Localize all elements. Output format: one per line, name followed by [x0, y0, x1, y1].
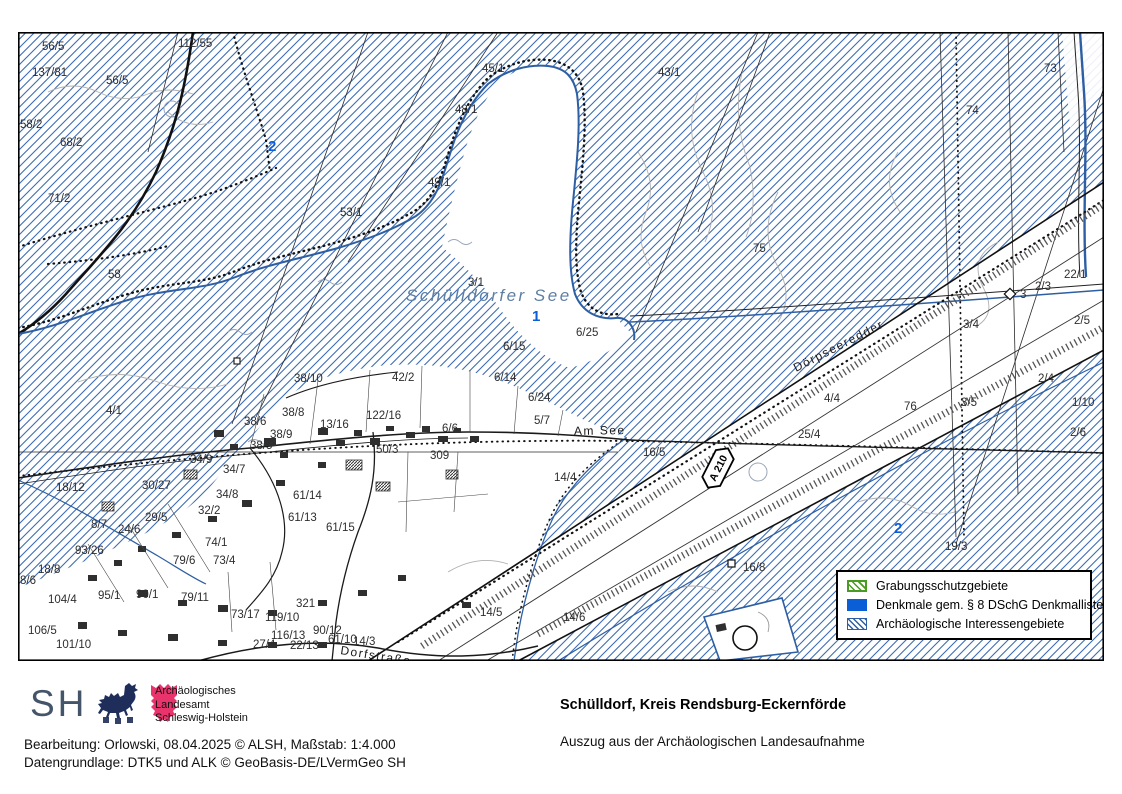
parcel-label: 38/5: [250, 440, 272, 452]
parcel-label: 42/2: [392, 372, 414, 384]
map-sheet: A 210 56/5112/55137/8156/558/268/271/258…: [0, 0, 1122, 794]
parcel-label: 61/13: [288, 512, 317, 524]
parcel-label: 74: [966, 105, 979, 117]
parcel-label: 16/5: [643, 447, 665, 459]
legend-row-denkmale: Denkmale gem. § 8 DSchG Denkmalliste: [847, 598, 1090, 612]
parcel-label: 14/4: [554, 472, 577, 484]
parcel-label: 6/15: [503, 341, 525, 353]
parcel-label: 38/9: [270, 429, 292, 441]
parcel-label: 2/6: [1070, 427, 1086, 439]
parcel-label: 3/5: [961, 397, 977, 409]
parcel-label: 24/6: [118, 524, 140, 536]
parcel-label: 8/7: [91, 519, 107, 531]
map-subtitle: Auszug aus der Archäologischen Landesauf…: [560, 734, 865, 749]
parcel-label: 101/10: [56, 639, 91, 651]
parcel-label: 309: [430, 450, 449, 462]
blue-hatch-swatch: [847, 618, 867, 630]
parcel-label: 73: [1044, 63, 1057, 75]
parcel-label: 32/2: [198, 505, 220, 517]
parcel-label: 49/1: [428, 177, 450, 189]
parcel-label: 18/8: [38, 564, 60, 576]
parcel-label: 119/10: [265, 612, 299, 624]
parcel-label: 106/5: [28, 625, 57, 637]
legend-label: Grabungsschutzgebiete: [876, 579, 1008, 593]
parcel-label: 6/14: [494, 372, 517, 384]
parcel-label: 18/12: [56, 482, 85, 494]
legend-row-grabungsschutzgebiete: Grabungsschutzgebiete: [847, 579, 1090, 593]
parcel-label: 137/81: [32, 67, 67, 79]
parcel-label: 34/8: [216, 489, 238, 501]
parcel-label: 45/1: [482, 63, 504, 75]
parcel-label: 112/55: [178, 38, 212, 50]
parcel-label: 16/8: [743, 562, 765, 574]
parcel-label: 6/24: [528, 392, 551, 404]
parcel-label: 27/4: [253, 639, 276, 651]
parcel-label: 43/1: [658, 67, 680, 79]
parcel-label: 14/6: [563, 612, 585, 624]
parcel-label: 74/1: [205, 537, 227, 549]
parcel-label: 3: [1020, 289, 1026, 301]
credit-line-datasource: Datengrundlage: DTK5 und ALK © GeoBasis-…: [24, 755, 406, 770]
parcel-label: 122/16: [366, 410, 401, 422]
parcel-label: 34/7: [223, 464, 245, 476]
parcel-label: 61/15: [326, 522, 355, 534]
interest-area-number-label: 2: [268, 138, 276, 155]
parcel-label: 58/2: [20, 119, 42, 131]
map-drawing: A 210 56/5112/55137/8156/558/268/271/258…: [18, 32, 1104, 661]
parcel-label: 48/1: [455, 104, 477, 116]
map-title: Schülldorf, Kreis Rendsburg-Eckernförde: [560, 697, 846, 713]
parcel-label: 68/2: [60, 137, 82, 149]
parcel-label: 95/1: [98, 590, 120, 602]
credit-line-editing: Bearbeitung: Orlowski, 08.04.2025 © ALSH…: [24, 737, 396, 752]
interest-area-number-label: 2: [894, 520, 902, 537]
lion-icon: [95, 683, 141, 725]
parcel-label: 34/9: [190, 454, 212, 466]
parcel-label: 6/25: [576, 327, 598, 339]
agency-line: Schleswig-Holstein: [155, 712, 248, 726]
survey-square: [728, 560, 735, 567]
parcel-label: 3/4: [963, 319, 980, 331]
parcel-label: 79/11: [181, 592, 209, 604]
parcel-label: 50/3: [376, 444, 398, 456]
parcel-label: 73/4: [213, 555, 236, 567]
parcel-label: 56/5: [42, 41, 64, 53]
blue-solid-swatch: [847, 599, 867, 611]
legend: Grabungsschutzgebiete Denkmale gem. § 8 …: [836, 570, 1092, 640]
parcel-label: 58: [108, 269, 121, 281]
parcel-label: 321: [296, 598, 315, 610]
agency-line: Landesamt: [155, 699, 248, 713]
legend-label: Denkmale gem. § 8 DSchG Denkmalliste: [876, 598, 1103, 612]
footer: SH Archäologisches Landesamt Schleswig-H…: [0, 661, 1122, 794]
parcel-label: 90/1: [136, 589, 158, 601]
parcel-label: 2/3: [1035, 281, 1051, 293]
parcel-label: 38/6: [244, 416, 266, 428]
parcel-label: 2/5: [1074, 315, 1090, 327]
parcel-label: 53/1: [340, 207, 362, 219]
parcel-label: 5/7: [534, 415, 550, 427]
parcel-label: 79/6: [173, 555, 195, 567]
parcel-label: 13/16: [320, 419, 349, 431]
street-label: Am See: [574, 423, 626, 438]
parcel-label: 2/4: [1038, 373, 1055, 385]
parcel-label: 61/14: [293, 490, 322, 502]
green-hatch-swatch: [847, 580, 867, 592]
parcel-label: 90/12: [313, 625, 342, 637]
parcel-label: 73/17: [231, 609, 260, 621]
parcel-label: 93/26: [75, 545, 104, 557]
parcel-label: 19/3: [945, 541, 967, 553]
parcel-label: 4/4: [824, 393, 841, 405]
agency-line: Archäologisches: [155, 685, 248, 699]
parcel-label: 14/5: [480, 607, 502, 619]
map-canvas: A 210 56/5112/55137/8156/558/268/271/258…: [18, 32, 1104, 661]
agency-name: Archäologisches Landesamt Schleswig-Hols…: [155, 685, 248, 726]
parcel-label: 22/1: [1064, 269, 1086, 281]
parcel-label: 104/4: [48, 594, 77, 606]
parcel-label: 38/10: [294, 373, 323, 385]
legend-label: Archäologische Interessengebiete: [876, 617, 1064, 631]
parcel-label: 30/27: [142, 480, 171, 492]
survey-square: [234, 358, 240, 364]
parcel-label: 29/5: [145, 512, 167, 524]
parcel-label: 75: [753, 243, 766, 255]
parcel-label: 76: [904, 401, 917, 413]
parcel-label: 8/6: [20, 575, 36, 587]
parcel-label: 4/1: [106, 405, 122, 417]
parcel-label: 38/8: [282, 407, 304, 419]
lake-label: Schülldorfer See: [406, 286, 572, 305]
parcel-label: 56/5: [106, 75, 128, 87]
interest-area-number-label: 1: [532, 308, 540, 325]
parcel-label: 1/10: [1072, 397, 1094, 409]
parcel-label: 71/2: [48, 193, 70, 205]
sh-logo-text: SH: [30, 683, 87, 725]
legend-row-interessengebiete: Archäologische Interessengebiete: [847, 617, 1090, 631]
parcel-label: 22/13: [290, 640, 319, 652]
parcel-label: 25/4: [798, 429, 821, 441]
parcel-label: 6/6: [442, 423, 458, 435]
